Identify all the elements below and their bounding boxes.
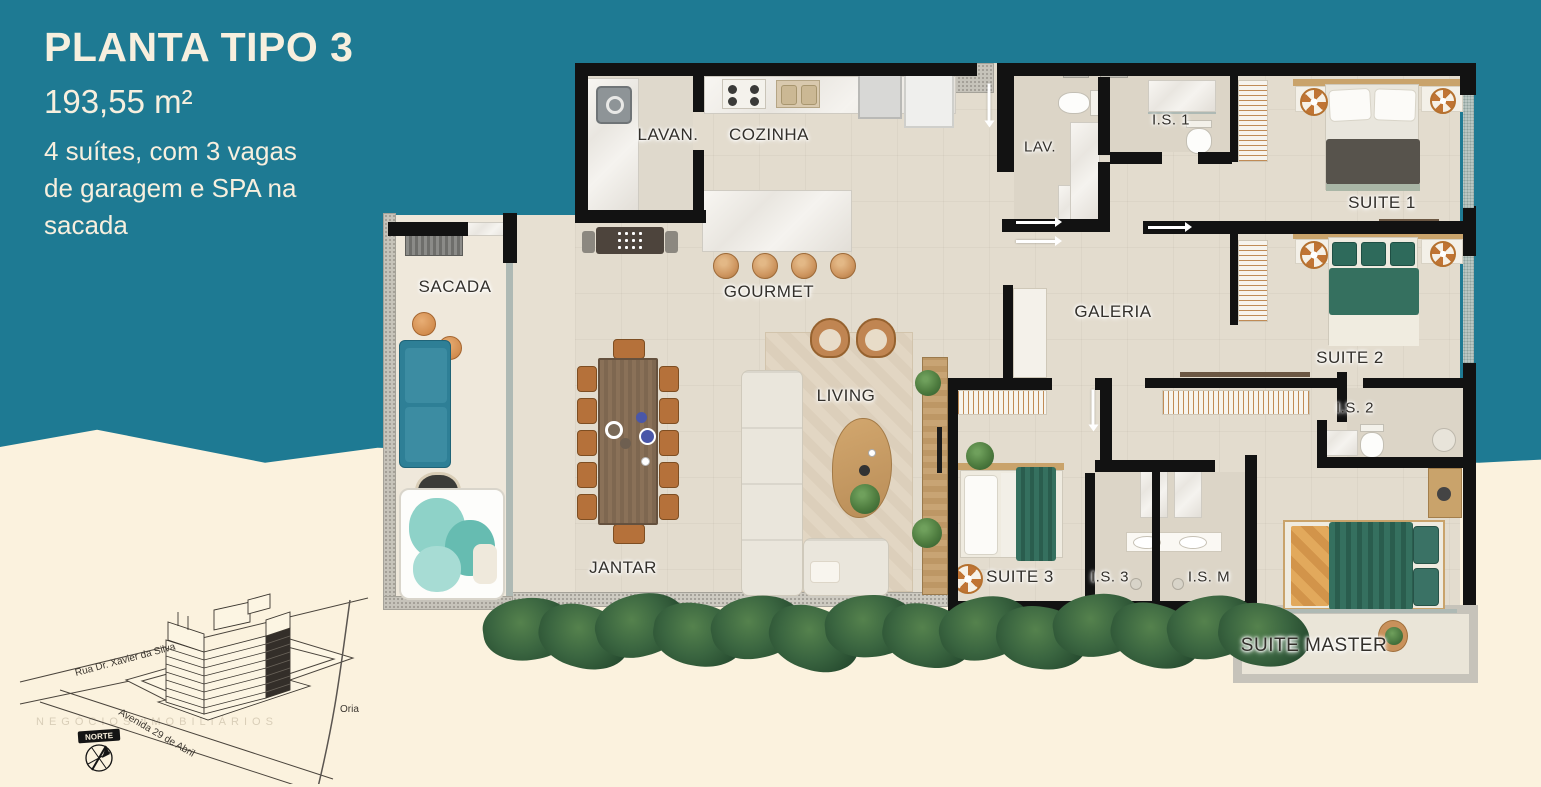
wall (1230, 70, 1238, 162)
wall (1145, 378, 1337, 388)
balcony-left-edge (383, 213, 396, 610)
room-label-galeria: GALERIA (1074, 302, 1151, 322)
bed-foot (1329, 315, 1419, 346)
room-label-ism: I.S. M (1188, 569, 1230, 586)
bed-throw-orange (1291, 526, 1329, 606)
wall (575, 63, 588, 213)
sink-basin (781, 85, 797, 105)
plant (966, 442, 994, 470)
plant (912, 518, 942, 548)
window-suite2 (1463, 256, 1474, 363)
dining-table (598, 358, 658, 525)
dining-chair (613, 339, 645, 359)
room-label-sacada: SACADA (419, 277, 492, 297)
wall (503, 213, 517, 263)
closet-suite1 (1238, 80, 1268, 162)
blanket-green (1329, 268, 1419, 315)
stool (791, 253, 817, 279)
shower-is2 (1432, 428, 1456, 452)
refrigerator (904, 74, 954, 128)
bistro-chair (665, 231, 678, 253)
stool (752, 253, 778, 279)
pillow (1328, 88, 1372, 122)
washer-door (606, 96, 624, 114)
decor-bowl (636, 412, 647, 423)
balcony-sofa (399, 340, 451, 468)
plan-description: 4 suítes, com 3 vagas de garagem e SPA n… (44, 133, 404, 244)
plan-title: PLANTA TIPO 3 (44, 24, 404, 71)
wall (1245, 455, 1257, 613)
bed-runner (1326, 184, 1420, 191)
gourmet-island (702, 190, 852, 252)
description-line: 4 suítes, com 3 vagas (44, 133, 404, 170)
bistro-chair (582, 231, 595, 253)
wall (1003, 285, 1013, 381)
pillow (1373, 88, 1416, 121)
north-compass-icon: NORTE (78, 729, 121, 771)
wall (1152, 470, 1160, 610)
river-label: Oria (340, 704, 359, 715)
powder-counter (1070, 122, 1100, 222)
toilet (1360, 432, 1384, 458)
burner (750, 97, 759, 106)
bed-suite3 (960, 470, 1063, 558)
pillow-green (1390, 242, 1415, 266)
room-label-is1: I.S. 1 (1152, 112, 1190, 129)
living-sofa-chaise (803, 538, 889, 596)
entry-arrow (988, 84, 991, 122)
wall (1463, 363, 1476, 605)
room-label-lavabo: LAV. (1024, 139, 1056, 156)
room-label-suite-master: SUITE MASTER (1241, 635, 1387, 657)
decor-bowl (639, 428, 656, 445)
dining-chair (577, 430, 597, 456)
wall (997, 63, 1460, 76)
pillow-green (1361, 242, 1386, 266)
armchair (810, 318, 850, 358)
pillow (964, 475, 998, 555)
balcony-glass-partition (506, 262, 513, 596)
wall (575, 210, 706, 223)
shower-drain (1172, 578, 1184, 590)
toilet-tank (1360, 424, 1384, 432)
dining-chair (613, 524, 645, 544)
description-line: de garagem e SPA na (44, 170, 404, 207)
tv (937, 427, 942, 473)
wall (1110, 152, 1162, 164)
decor-bowl (641, 457, 650, 466)
spa-water (413, 546, 461, 592)
sofa-cushion (405, 407, 447, 462)
wall (1317, 420, 1327, 460)
wall (1230, 233, 1238, 325)
location-map: Rua Dr. Xavier da Silva Avenida 29 de Ab… (18, 562, 390, 784)
dining-chair (659, 494, 679, 520)
wall (1100, 378, 1112, 470)
building-roof-box (248, 594, 270, 614)
door-arrow (1148, 226, 1186, 229)
bistro-table (596, 227, 664, 254)
wall (1098, 162, 1110, 222)
wall (575, 63, 977, 76)
building-sketch (158, 594, 310, 720)
door-arrow (1092, 390, 1095, 426)
kitchen-cabinet (858, 73, 902, 119)
blanket-gray (1326, 139, 1420, 185)
floor-plan-page: PLANTA TIPO 3 193,55 m² 4 suítes, com 3 … (0, 0, 1541, 787)
burner (728, 97, 737, 106)
window-suite1 (1463, 95, 1474, 208)
room-label-living: LIVING (817, 386, 876, 406)
burner (750, 85, 759, 94)
room-label-cozinha: COZINHA (729, 125, 809, 145)
dining-chair (577, 462, 597, 488)
pillow-green (1332, 242, 1357, 266)
dining-floor-strip (512, 215, 575, 605)
pillow-green (1413, 568, 1439, 606)
building-roof-box (214, 602, 250, 630)
armchair-cushion (865, 329, 887, 351)
wall (1098, 77, 1110, 155)
wall (693, 63, 704, 112)
ceiling-fan-icon (1430, 88, 1456, 114)
title-block: PLANTA TIPO 3 193,55 m² 4 suítes, com 3 … (44, 24, 404, 244)
wall (1317, 457, 1463, 468)
wall (693, 150, 704, 223)
spa-jacuzzi (399, 488, 505, 600)
street-label-2: Avenida 29 de Abril (117, 707, 197, 760)
pillow-green (1413, 526, 1439, 564)
dining-chair (577, 366, 597, 392)
shower-drain (1130, 578, 1142, 590)
bed-master (1283, 520, 1445, 610)
flower-vase (616, 230, 642, 250)
vanity-sink (1179, 536, 1207, 549)
plant (850, 484, 880, 514)
wall (948, 378, 958, 608)
decor-bowl (868, 449, 876, 457)
master-desk (1428, 468, 1462, 518)
armchair (856, 318, 896, 358)
closet-suite2 (1238, 240, 1268, 322)
room-label-is2: I.S. 2 (1336, 400, 1374, 417)
closet-hall (1162, 390, 1310, 415)
door-arrow (1016, 221, 1056, 224)
blanket-green (1016, 467, 1056, 561)
plant (915, 370, 941, 396)
street-line (20, 681, 130, 704)
plant (1385, 627, 1403, 645)
room-label-gourmet: GOURMET (724, 282, 814, 302)
wall (1085, 473, 1095, 610)
bed-sheet (1001, 473, 1016, 557)
planter-row (483, 592, 1295, 672)
dining-chair (577, 494, 597, 520)
ceiling-fan-icon (1430, 241, 1456, 267)
sink-basin (801, 85, 817, 105)
bed-suite1 (1325, 84, 1419, 190)
double-vanity (1126, 532, 1222, 552)
wall (997, 76, 1014, 172)
shower-ism (1174, 468, 1202, 518)
shower-is1 (1148, 80, 1216, 112)
washing-machine (596, 86, 632, 124)
sofa-cushion (405, 348, 447, 403)
cooktop (722, 79, 766, 109)
decor-bowl (620, 438, 631, 449)
blanket-green (1329, 522, 1413, 610)
wall (1363, 378, 1463, 388)
bed-suite2 (1328, 237, 1418, 345)
armchair-cushion (819, 329, 841, 351)
stool (830, 253, 856, 279)
wall (1463, 206, 1476, 256)
wall (388, 222, 468, 236)
bed-bench (1180, 372, 1310, 377)
spa-seat (473, 544, 497, 584)
stool (713, 253, 739, 279)
dining-chair (577, 398, 597, 424)
closet-suite3 (957, 390, 1047, 415)
desk-chair (1437, 487, 1451, 501)
room-label-suite1: SUITE 1 (1348, 193, 1416, 213)
sofa-pillow (810, 561, 840, 583)
wall (1460, 63, 1476, 95)
burner (728, 85, 737, 94)
building-highlight-unit (266, 628, 290, 698)
room-label-jantar: JANTAR (589, 558, 657, 578)
dining-chair (659, 462, 679, 488)
side-table (412, 312, 436, 336)
toilet (1058, 92, 1090, 114)
dining-chair (659, 398, 679, 424)
ceiling-fan-icon (1300, 241, 1328, 269)
ceiling-fan-icon (1300, 88, 1328, 116)
dining-chair (659, 430, 679, 456)
toilet (1186, 128, 1212, 154)
living-sofa (741, 370, 803, 596)
room-label-is3: I.S. 3 (1091, 569, 1129, 586)
plate (605, 421, 623, 439)
room-label-suite2: SUITE 2 (1316, 348, 1384, 368)
wall (1198, 152, 1232, 164)
decor-bowl (859, 465, 870, 476)
wall (948, 378, 1052, 390)
dining-chair (659, 366, 679, 392)
room-label-suite3: SUITE 3 (986, 567, 1054, 587)
door-arrow (1016, 240, 1056, 243)
room-label-lavanderia: LAVAN. (638, 125, 699, 145)
plan-area: 193,55 m² (44, 83, 404, 121)
hall-cabinet (1013, 288, 1047, 378)
double-sink (776, 80, 820, 108)
river-line (318, 600, 350, 784)
description-line: sacada (44, 207, 404, 244)
